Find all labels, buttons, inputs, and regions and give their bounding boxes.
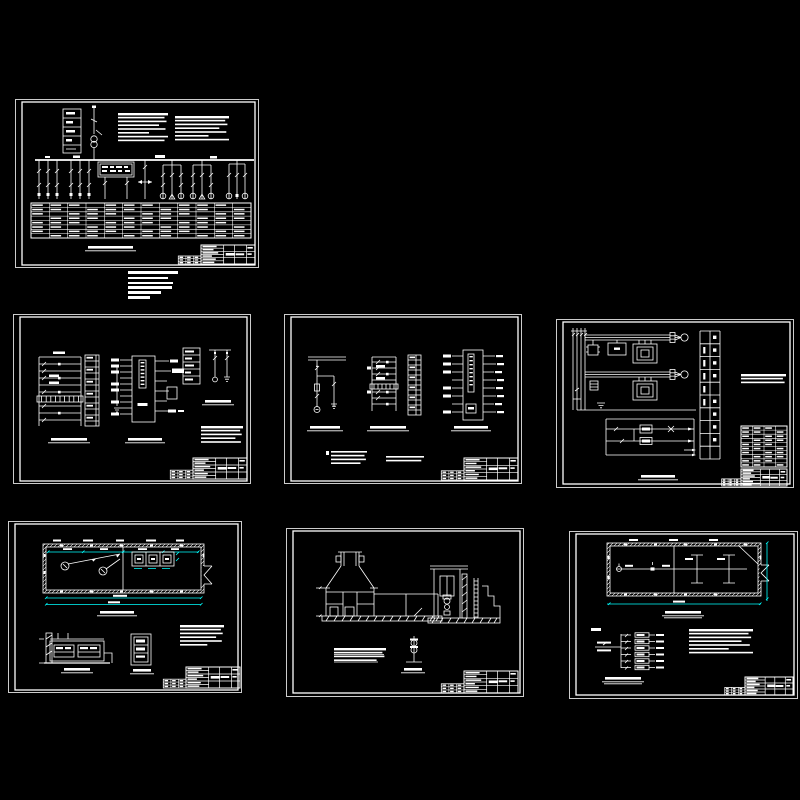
terminal-table <box>85 355 99 426</box>
sheet-motor-power-control[interactable] <box>556 319 794 488</box>
caption-plan <box>662 611 704 618</box>
title-block <box>178 245 255 264</box>
sheet-power-distribution-single-line[interactable] <box>15 99 259 268</box>
primary-scheme <box>308 357 346 413</box>
motor-branch-2 <box>585 370 688 401</box>
notes-block <box>201 426 243 443</box>
notes-block <box>180 625 224 646</box>
caption-aux <box>202 400 234 405</box>
title-block <box>163 667 240 688</box>
caption-secondary <box>367 426 409 431</box>
metering-box <box>98 162 134 199</box>
tie-feeder <box>138 160 152 199</box>
note-text-block <box>128 271 180 301</box>
phase-lines <box>571 328 587 410</box>
lighting-plan-drawing <box>569 531 798 699</box>
distribution-tree <box>591 628 664 670</box>
drawing-caption <box>638 475 678 480</box>
ladder-diagram <box>37 352 83 427</box>
aux-circuit <box>209 350 231 382</box>
feeder-drops <box>37 160 91 199</box>
controller-block <box>443 350 504 420</box>
caption-plan <box>97 611 137 616</box>
title-block <box>170 458 247 479</box>
sheet-lighting-plan[interactable] <box>569 531 798 699</box>
terminal-table <box>408 355 421 415</box>
note-index <box>326 451 329 455</box>
panel-detail <box>131 634 151 665</box>
sheet-structure-sections[interactable] <box>286 528 524 697</box>
note-line <box>128 296 150 298</box>
title-block <box>441 671 518 693</box>
feeder-schedule-table <box>31 203 251 238</box>
floor-plan <box>43 540 212 594</box>
structure-sections-drawing <box>286 528 524 697</box>
secondary-control-drawing-1 <box>13 314 251 484</box>
lighting-floor-plan <box>607 539 769 596</box>
notes-block <box>741 374 786 383</box>
caption-ladder <box>48 438 90 443</box>
title-block <box>441 458 518 480</box>
section-view-right <box>428 566 500 623</box>
pump-room-plan-drawing <box>8 521 242 693</box>
incoming-feeder-transformer <box>91 106 102 161</box>
notes-block-2 <box>386 456 424 461</box>
caption-elevation <box>61 668 93 673</box>
sheet-pump-room-plan[interactable] <box>8 521 242 693</box>
single-line-diagram-drawing <box>15 99 259 268</box>
drawing-caption <box>85 246 136 251</box>
neutral-ground <box>573 388 696 410</box>
sheet-secondary-control-2[interactable] <box>284 314 522 484</box>
section-view-left <box>316 552 442 621</box>
motor-power-control-drawing <box>556 319 794 488</box>
spare-feeder-group <box>226 160 248 199</box>
note-line <box>128 277 168 279</box>
equipment-table <box>741 426 787 467</box>
note-line <box>128 286 172 288</box>
incoming-cabinet <box>63 109 81 153</box>
note-line <box>128 271 178 274</box>
secondary-ladder <box>367 357 398 411</box>
note-line <box>128 291 161 293</box>
control-ladder <box>606 419 696 456</box>
caption-primary <box>307 426 343 431</box>
caption-detail <box>401 668 425 673</box>
terminal-strip <box>700 331 720 459</box>
motor-feeder-group-1 <box>160 160 184 199</box>
notes-column-1 <box>118 113 168 141</box>
caption-controller <box>125 438 165 443</box>
notes-block-1 <box>331 451 367 464</box>
elevation-view <box>39 633 112 663</box>
pipe-detail <box>406 636 422 662</box>
caption-detail <box>130 669 154 674</box>
secondary-control-drawing-2 <box>284 314 522 484</box>
notes-block <box>689 629 753 653</box>
caption-tree <box>602 677 644 684</box>
motor-branch-1 <box>585 333 688 364</box>
controller-block <box>111 356 184 422</box>
motor-feeder-group-2 <box>190 160 214 199</box>
plan-dimensions <box>45 595 203 606</box>
title-block <box>725 677 793 695</box>
note-line <box>128 282 173 284</box>
aux-panel <box>183 348 200 384</box>
sheet-secondary-control-1[interactable] <box>13 314 251 484</box>
notes-column-2 <box>175 116 229 140</box>
caption-controller <box>451 426 491 431</box>
